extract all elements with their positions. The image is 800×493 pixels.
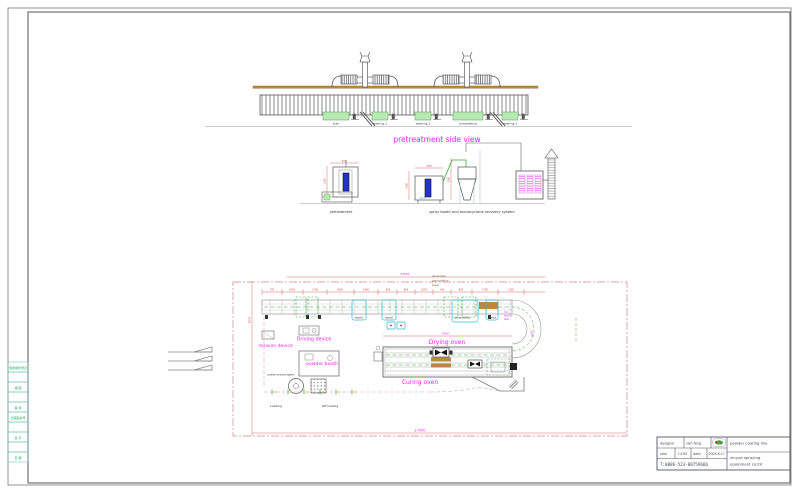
- tank-label: phosphating: [454, 316, 470, 320]
- strip-label: 旧底图总号: [10, 415, 25, 420]
- after-filter: [516, 171, 548, 199]
- rate-value: 1:100: [678, 452, 688, 456]
- tank-phosphating: [415, 112, 431, 120]
- tank-label: washing 2: [416, 122, 430, 126]
- dim-text: 140: [440, 289, 445, 292]
- oven-fan-1: [430, 348, 453, 357]
- strip-label: 审 核: [15, 405, 22, 410]
- section-views: 2350 900 pretreatment 2500 1500: [300, 143, 558, 214]
- section-label: pretreatment: [330, 210, 353, 214]
- date-label: date: [693, 452, 701, 456]
- monorail-beam: [253, 86, 538, 88]
- exhaust-fan-2: [434, 52, 500, 87]
- date-value: 2005.6.17: [709, 452, 725, 456]
- tower-note: phosphate precipitation tower: [432, 274, 449, 287]
- dim-text: 1550: [289, 289, 295, 292]
- conveyor-uturn: [512, 300, 541, 358]
- burner: [431, 364, 451, 368]
- workpiece: [425, 179, 431, 197]
- powder-booth-label: powder booth: [306, 361, 338, 367]
- dot: [390, 325, 392, 327]
- segment-dim-labels: 700 1550 1700 3000 1450 850 800 1643 140…: [270, 289, 515, 292]
- strip-cell: [8, 372, 28, 382]
- tank-skim: [323, 112, 349, 120]
- dim-text: 1643: [421, 289, 427, 292]
- company-line: equipment co.ltd: [730, 462, 763, 467]
- hatch-tick: [509, 380, 518, 389]
- strip-cell: [8, 422, 28, 432]
- dot: [400, 325, 402, 327]
- phone-number: T:0086-523-88759666: [660, 462, 708, 467]
- tank-label: phosphating: [459, 122, 477, 126]
- dim-text: 2500: [406, 183, 409, 189]
- dim-text: 24050: [401, 272, 410, 276]
- dim-text: 3000: [337, 289, 343, 292]
- product-name: powder coating line: [730, 441, 768, 446]
- driving-device: [299, 326, 319, 335]
- tank-label: wash1: [355, 316, 363, 320]
- note-line: tank: [504, 318, 510, 321]
- cad-drawing-sheet: 借通用件登记 描 图 审 核 旧底图总号 签 字 日 期: [0, 0, 800, 493]
- tank-label: washing 3: [503, 122, 517, 126]
- drying-oven-label: Drying oven: [429, 339, 466, 346]
- strip-label: 日 期: [15, 455, 22, 460]
- dim-text: 1250: [508, 289, 514, 292]
- designer-label: designer: [660, 442, 675, 446]
- side-view-title: pretreatment side view: [393, 135, 480, 144]
- dim-text: 700: [270, 289, 275, 292]
- pretreatment-side-view: skim washing 1 washing 2 phosphating was…: [205, 52, 632, 144]
- up-arrow-icon: [545, 149, 558, 158]
- tank-washing1: [372, 112, 388, 120]
- dim-text: 2350: [324, 178, 327, 184]
- strip-cell: [8, 442, 28, 452]
- dim-text: 800: [404, 289, 409, 292]
- strip-label: 签 字: [15, 435, 22, 440]
- filter-grid: [311, 379, 326, 393]
- sheet-borders: [8, 8, 791, 485]
- dim-text: 1700: [312, 289, 318, 292]
- tank-washing2: [453, 112, 483, 120]
- oven-fan-2: [468, 360, 482, 368]
- dim-text: 800: [459, 289, 464, 292]
- platform: [479, 302, 498, 309]
- note-line: precipitation: [432, 279, 449, 283]
- tank-label: skim: [333, 122, 340, 126]
- note-line: tower: [432, 283, 440, 287]
- title-block: designer jain feng rate 1:100 date 2005.…: [657, 437, 790, 470]
- powder-recovery-label: powder recovery system: [267, 374, 294, 377]
- exhaust-stack: [545, 149, 558, 199]
- section-label: spray booth and monocyclone recovery sys…: [429, 210, 515, 214]
- exhaust-fan-1: [332, 52, 398, 87]
- dim-text: 7000: [441, 332, 449, 336]
- left-strip: 借通用件登记 描 图 审 核 旧底图总号 签 字 日 期: [8, 362, 28, 462]
- dim-text: 1450: [363, 289, 369, 292]
- dim-text: 1700: [482, 289, 488, 292]
- oven-fan-3: [510, 363, 517, 370]
- tank-washing3: [502, 112, 518, 120]
- rate-label: rate: [660, 452, 667, 456]
- strip-label: 借通用件登记: [9, 365, 27, 370]
- dim-text: 27000: [414, 429, 426, 433]
- dim-text: 850: [386, 289, 391, 292]
- note-line: phosphate: [432, 274, 446, 278]
- dim-text: 1500: [426, 165, 432, 168]
- curing-oven-label: Curing oven: [402, 379, 439, 386]
- tension-device-label: tension device: [259, 343, 293, 349]
- cyclone: 3200: [448, 143, 522, 203]
- pretreatment-section: 2350 900 pretreatment: [322, 160, 359, 214]
- tunnel-band: [260, 95, 528, 115]
- tank-label: washing 1: [373, 122, 387, 126]
- powder-booth: [299, 346, 382, 376]
- driving-device-label: Driving device: [297, 337, 332, 343]
- section-arrows: [168, 347, 212, 370]
- plan-view: 24050 700 1550 1700 3000 1450 850 800 16…: [233, 272, 627, 436]
- dim-text: 4500: [248, 316, 252, 323]
- company-logo-icon: [713, 439, 726, 447]
- tank-label: wash2: [385, 316, 393, 320]
- burner: [431, 358, 451, 362]
- dim-text: 3200: [448, 177, 451, 183]
- company-line: xinyue spraying: [730, 455, 761, 460]
- loading-label: Loading: [270, 404, 282, 408]
- strip-label: 描 图: [15, 385, 22, 390]
- outer-border: [8, 8, 791, 485]
- offloading-label: Off loading: [322, 404, 339, 408]
- workpiece: [343, 173, 349, 191]
- inner-border: [28, 12, 790, 483]
- designer-name: jain feng: [686, 442, 702, 446]
- strip-cell: [8, 392, 28, 402]
